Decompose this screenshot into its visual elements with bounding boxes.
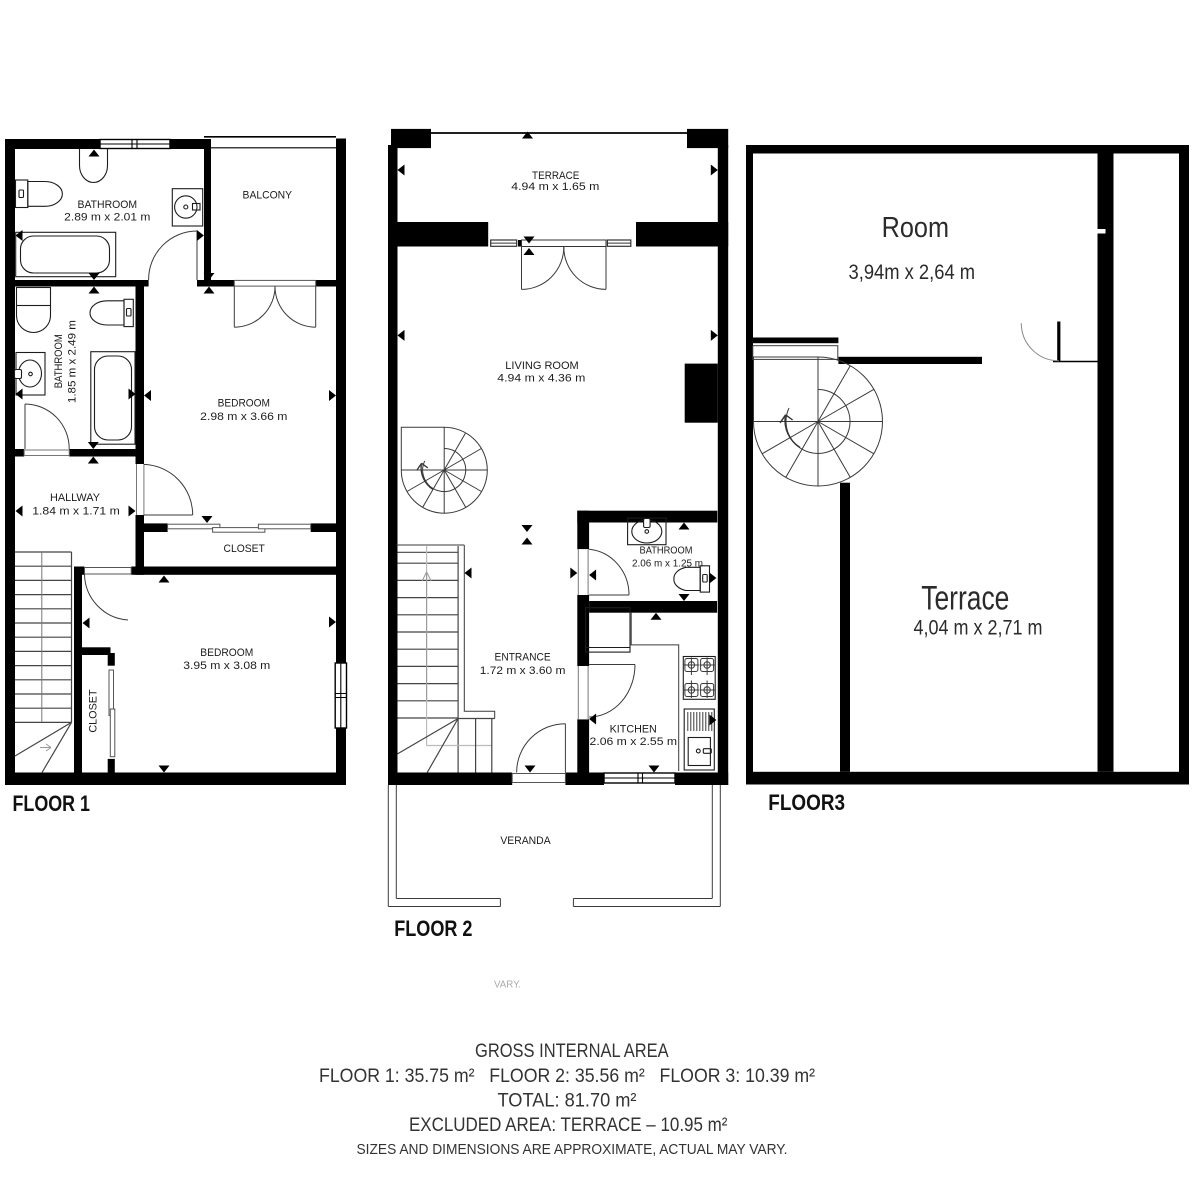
svg-text:KITCHEN: KITCHEN bbox=[610, 724, 657, 736]
svg-text:VARY.: VARY. bbox=[494, 979, 521, 991]
svg-text:FLOOR3: FLOOR3 bbox=[768, 790, 845, 815]
svg-text:2.89 m x 2.01 m: 2.89 m x 2.01 m bbox=[64, 212, 150, 224]
svg-text:Room: Room bbox=[882, 212, 949, 244]
svg-text:TOTAL: 81.70 m²: TOTAL: 81.70 m² bbox=[498, 1091, 637, 1112]
svg-text:3.95 m x 3.08 m: 3.95 m x 3.08 m bbox=[183, 660, 270, 672]
svg-text:CLOSET: CLOSET bbox=[224, 543, 266, 555]
svg-text:1.72 m x 3.60 m: 1.72 m x 3.60 m bbox=[480, 665, 566, 677]
svg-text:VERANDA: VERANDA bbox=[500, 835, 551, 847]
svg-text:BEDROOM: BEDROOM bbox=[218, 398, 270, 410]
svg-text:BEDROOM: BEDROOM bbox=[200, 647, 253, 659]
svg-text:BALCONY: BALCONY bbox=[243, 190, 293, 202]
svg-text:2.06 m x 1.25 m: 2.06 m x 1.25 m bbox=[632, 559, 703, 570]
svg-text:LIVING ROOM: LIVING ROOM bbox=[505, 360, 578, 372]
svg-text:4.94 m x 4.36 m: 4.94 m x 4.36 m bbox=[497, 373, 585, 385]
svg-text:GROSS INTERNAL AREA: GROSS INTERNAL AREA bbox=[475, 1041, 669, 1062]
svg-text:ENTRANCE: ENTRANCE bbox=[495, 652, 551, 664]
svg-text:EXCLUDED AREA: TERRACE – 10.95: EXCLUDED AREA: TERRACE – 10.95 m² bbox=[409, 1115, 728, 1136]
svg-text:BATHROOM: BATHROOM bbox=[78, 199, 138, 211]
svg-text:CLOSET: CLOSET bbox=[88, 689, 100, 733]
svg-text:2.06 m x 2.55 m: 2.06 m x 2.55 m bbox=[590, 736, 678, 748]
svg-text:HALLWAY: HALLWAY bbox=[50, 492, 101, 504]
svg-text:FLOOR 1: 35.75 m² FLOOR 2: 3: FLOOR 1: 35.75 m² FLOOR 2: 35.56 m² FLOO… bbox=[319, 1066, 815, 1087]
svg-text:4.94 m x 1.65 m: 4.94 m x 1.65 m bbox=[511, 181, 599, 193]
svg-text:SIZES AND DIMENSIONS ARE APPRO: SIZES AND DIMENSIONS ARE APPROXIMATE, AC… bbox=[357, 1141, 788, 1158]
svg-text:FLOOR 1: FLOOR 1 bbox=[13, 791, 91, 816]
svg-text:BATHROOM: BATHROOM bbox=[53, 334, 65, 388]
svg-text:FLOOR 2: FLOOR 2 bbox=[394, 916, 472, 941]
svg-text:3,94m x 2,64 m: 3,94m x 2,64 m bbox=[849, 261, 976, 284]
svg-text:4,04 m x 2,71 m: 4,04 m x 2,71 m bbox=[914, 617, 1043, 640]
svg-text:2.98 m x 3.66 m: 2.98 m x 3.66 m bbox=[200, 411, 287, 423]
svg-text:1.85 m x 2.49 m: 1.85 m x 2.49 m bbox=[67, 320, 79, 403]
svg-text:1.84 m x 1.71 m: 1.84 m x 1.71 m bbox=[32, 505, 120, 517]
svg-text:Terrace: Terrace bbox=[921, 580, 1009, 618]
svg-text:BATHROOM: BATHROOM bbox=[640, 546, 693, 557]
